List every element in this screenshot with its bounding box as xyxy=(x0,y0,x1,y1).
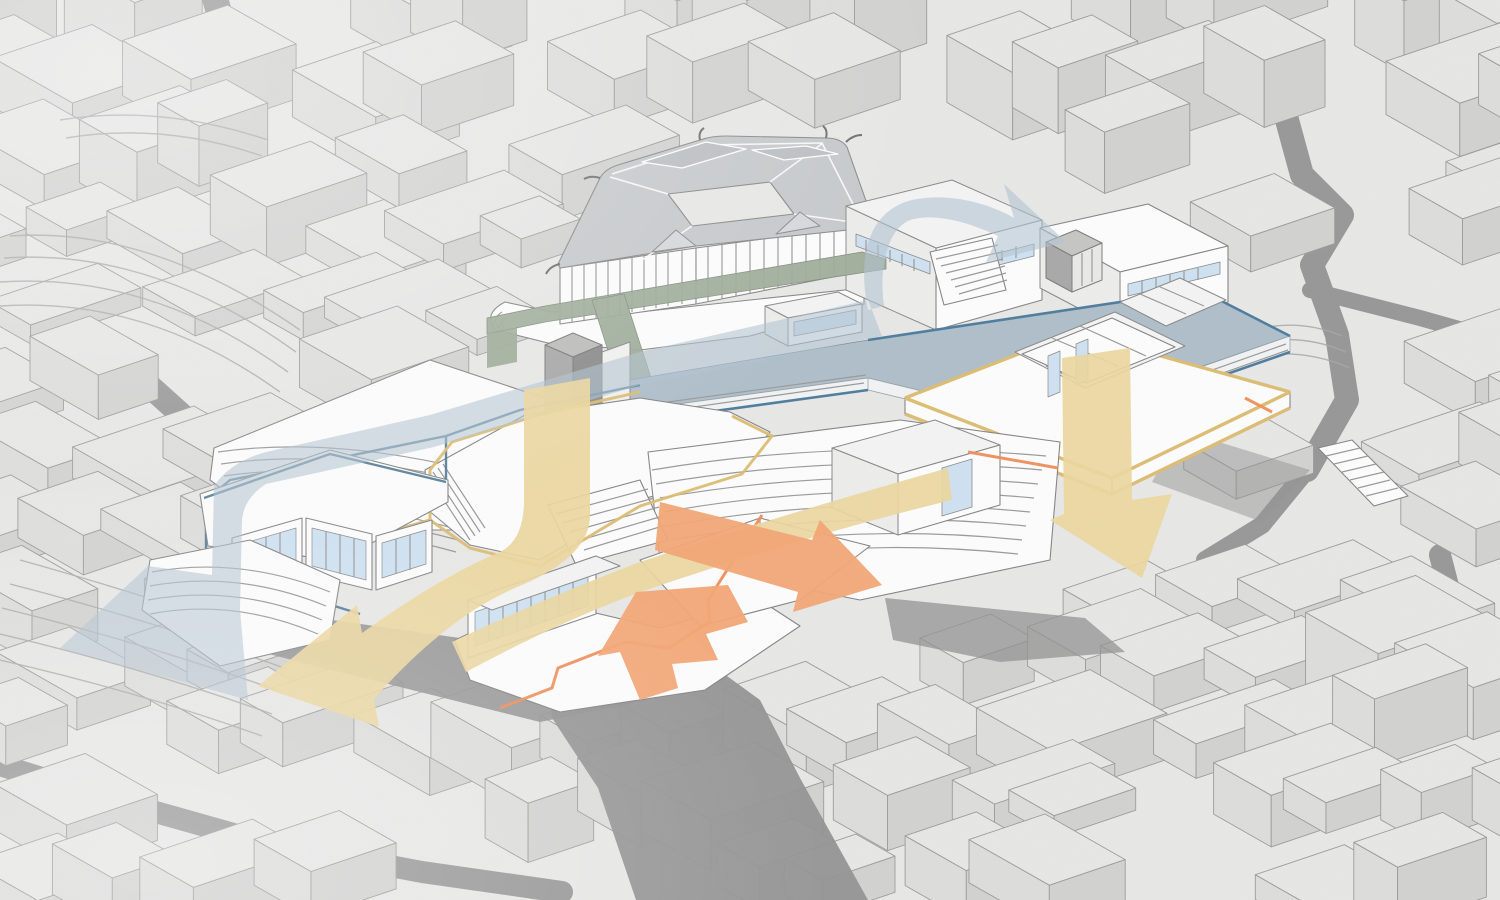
axonometric-diagram xyxy=(0,0,1500,900)
paper-grain xyxy=(0,0,1500,900)
diagram-stage xyxy=(0,0,1500,900)
